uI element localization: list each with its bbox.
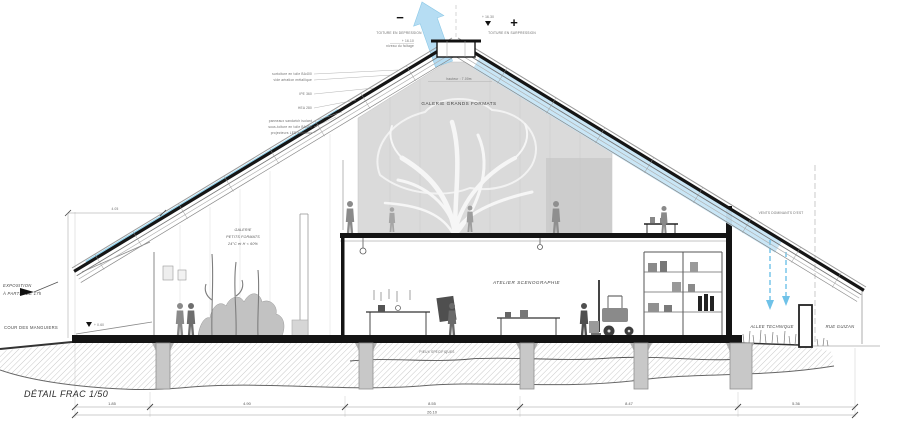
pedestal (292, 320, 308, 336)
mezzanine-slab (340, 233, 732, 238)
pressure-minus: − (396, 10, 404, 25)
down-airflow-arrow (766, 300, 774, 310)
roof-layer-label: surtoiture en toile BA400 (272, 72, 312, 76)
dim-segment: 8.55 (428, 401, 437, 406)
pendant-light (538, 245, 543, 250)
toiture-surpression-label: TOITURE EN SURPRESSION (488, 31, 536, 35)
ground-level: + 0.60 (94, 323, 104, 327)
dim-segment: 4.90 (243, 401, 252, 406)
vents-label: VENTS DOMINANTS D'EST (759, 211, 804, 215)
roof-layer-label: HEA 280 (298, 106, 312, 110)
dim-segment: 5.36 (792, 401, 801, 406)
storage-shelving (644, 252, 722, 336)
petits-formats-line1: GALERIE (235, 228, 252, 232)
level-marker-icon (485, 21, 491, 26)
cour-label: COUR DES MANGUIERS (4, 325, 58, 330)
down-airflow-arrow (782, 296, 790, 306)
person-silhouette (187, 303, 195, 336)
roof-layer-label: vide aération métallique (274, 78, 312, 82)
person-silhouette (660, 206, 667, 234)
dim-segment: 8.47 (625, 401, 634, 406)
roof-layer-label: sous-toiture en toile BA400 (268, 125, 312, 129)
rue-label: RUE GUIZAN (826, 324, 856, 329)
ground-slab (72, 335, 742, 343)
ridge-note: niveau du faîtage (386, 44, 414, 48)
boundary-wall (799, 305, 812, 347)
ridge-level: + 16.30 (482, 15, 494, 19)
architectural-section-page: − + TOITURE EN DEPRESSION TOITURE EN SUR… (0, 0, 902, 427)
roof-layer-label: IPE 360 (299, 92, 312, 96)
dim-segment: 1.85 (108, 401, 117, 406)
ridge-sublevel: + 16.10 (402, 39, 414, 43)
roof-layer-label: projecteurs LED lumineux (271, 131, 313, 135)
roof-layer-label: panneaux sandwich isolant (269, 119, 312, 123)
level-marker-icon (86, 322, 92, 327)
ridge-monitor (431, 41, 481, 57)
dim-total: 26.10 (427, 410, 438, 415)
toiture-depression-label: TOITURE EN DEPRESSION (376, 31, 422, 35)
drawing-title: DÉTAIL FRAC 1/50 (24, 389, 108, 399)
earth-hatch (0, 343, 834, 389)
plant-sculpture (198, 294, 284, 336)
petits-formats-line2: PETITS FORMATS (226, 235, 260, 239)
petits-formats-line3: 24°C et H < 60% (227, 242, 259, 246)
exposition-line1: EXPOSITION (3, 283, 32, 288)
pressure-plus: + (510, 15, 518, 30)
section-drawing: − + TOITURE EN DEPRESSION TOITURE EN SUR… (0, 0, 902, 427)
forklift (589, 280, 634, 337)
atelier-label: ATELIER SCENOGRAPHIE (492, 280, 561, 285)
central-hall (358, 62, 612, 233)
tool-wall (374, 289, 410, 302)
right-facade-wall (726, 206, 732, 343)
artwork-frame (163, 266, 173, 280)
pendant-light (360, 248, 366, 254)
person-silhouette (346, 201, 354, 234)
allee-label: ALLEE TECHNIQUE (749, 324, 793, 329)
hall-height-note: hauteur : 7.00m (446, 77, 471, 81)
dim-4-05: 4.05 (111, 207, 118, 211)
left-gallery (76, 134, 343, 336)
artwork-frame (178, 270, 186, 280)
person-silhouette (580, 303, 588, 336)
hall-label: GALERIE GRANDS FORMATS (421, 101, 496, 106)
mezzanine-post (341, 238, 345, 336)
pieux-label: PIEUX SPECIFIQUES (419, 350, 454, 354)
atelier (360, 238, 722, 337)
